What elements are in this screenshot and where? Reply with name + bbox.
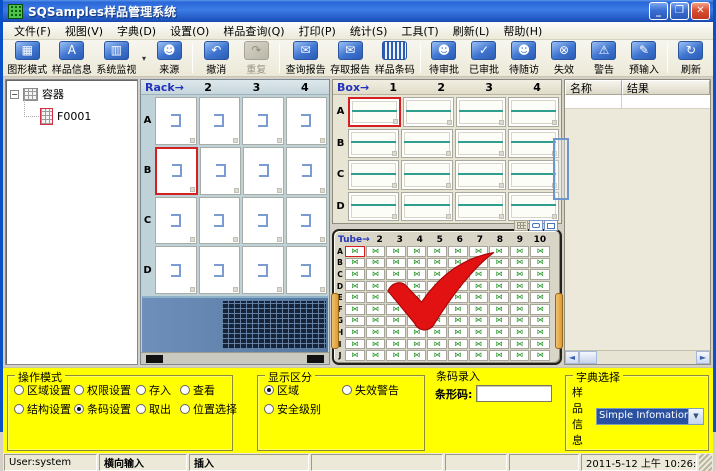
rack-slot-icon <box>258 214 268 227</box>
tcell-D5[interactable]: ⋈ <box>427 281 447 292</box>
column-header-name[interactable]: 名称 <box>565 80 622 95</box>
tcell-G10[interactable]: ⋈ <box>530 316 550 327</box>
radio-icon[interactable] <box>14 385 24 395</box>
sample-info-button[interactable]: A样品信息 <box>50 40 95 77</box>
rcell-A3[interactable] <box>242 97 284 145</box>
rcell-D1[interactable] <box>155 246 197 294</box>
operation-mode-option-取出[interactable]: 取出 <box>136 401 180 417</box>
tcell-B6[interactable]: ⋈ <box>448 258 468 269</box>
grid-view-button[interactable] <box>514 220 528 231</box>
tcell-C5[interactable]: ⋈ <box>427 269 447 280</box>
tcell-F3[interactable]: ⋈ <box>386 304 406 315</box>
tcell-H8[interactable]: ⋈ <box>489 327 509 338</box>
column-header-result[interactable]: 结果 <box>622 80 710 95</box>
toolbar-button-label: 查询报告 <box>286 61 326 76</box>
maximize-button[interactable]: ❐ <box>670 2 689 20</box>
grid-icon <box>517 222 526 229</box>
tcell-F5[interactable]: ⋈ <box>427 304 447 315</box>
query-report-button[interactable]: ✉查询报告 <box>283 40 328 77</box>
tcell-B9[interactable]: ⋈ <box>510 258 530 269</box>
rack-slot-icon <box>172 164 182 177</box>
box-lid-icon <box>511 195 556 219</box>
corner-mark-icon <box>190 138 195 143</box>
tcell-C3[interactable]: ⋈ <box>386 269 406 280</box>
row-label: D <box>335 192 346 222</box>
corner-mark-icon <box>552 214 557 219</box>
corner-mark-icon <box>446 183 451 188</box>
tcell-I5[interactable]: ⋈ <box>427 339 447 350</box>
tcell-J7[interactable]: ⋈ <box>469 350 489 361</box>
tcell-J9[interactable]: ⋈ <box>510 350 530 361</box>
tcell-B3[interactable]: ⋈ <box>386 258 406 269</box>
tcell-H9[interactable]: ⋈ <box>510 327 530 338</box>
scroll-left-button[interactable]: ◄ <box>565 351 579 364</box>
tcell-A7[interactable]: ⋈ <box>469 246 489 257</box>
toolbar: ▦图形模式A样品信息▥系统监视▾☻来源↶撤消↷重复✉查询报告✉存取报告样品条码☻… <box>3 40 713 77</box>
tcell-D9[interactable]: ⋈ <box>510 281 530 292</box>
barcode-entry-group: 条码录入 条形码: <box>429 375 553 451</box>
tcell-A4[interactable]: ⋈ <box>407 246 427 257</box>
toolbar-button-label: 来源 <box>159 61 179 76</box>
undo-button[interactable]: ↶撤消 <box>196 40 236 77</box>
tcell-F4[interactable]: ⋈ <box>407 304 427 315</box>
tcell-B1[interactable]: ⋈ <box>345 258 365 269</box>
tcell-J6[interactable]: ⋈ <box>448 350 468 361</box>
bcell-C4[interactable] <box>508 160 559 190</box>
maximize-child-button[interactable] <box>544 220 558 231</box>
box-seam-icon <box>458 141 503 143</box>
tcell-F6[interactable]: ⋈ <box>448 304 468 315</box>
tcell-B7[interactable]: ⋈ <box>469 258 489 269</box>
sample-barcode-button[interactable]: 样品条码 <box>372 40 417 77</box>
window-title: SQSamples样品管理系统 <box>28 3 647 20</box>
operation-mode-option-位置选择[interactable]: 位置选择 <box>180 401 234 417</box>
tube-col-header: 6 <box>450 235 470 245</box>
radio-label: 取出 <box>149 401 171 417</box>
menu-item[interactable]: 统计(S) <box>343 22 395 40</box>
display-options: 区域失效警告安全级别 <box>264 382 420 417</box>
maximize-icon <box>547 223 555 229</box>
access-report-button[interactable]: ✉存取报告 <box>328 40 373 77</box>
tcell-A6[interactable]: ⋈ <box>448 246 468 257</box>
box-grid: ABCD <box>333 95 561 223</box>
tcell-A3[interactable]: ⋈ <box>386 246 406 257</box>
rcell-B4[interactable] <box>286 147 327 195</box>
rack-header: Rack→234 <box>141 80 329 95</box>
pending-followup-button[interactable]: ☻待随访 <box>504 40 544 77</box>
tube-panel: Tube→2345678910 A⋈⋈⋈⋈⋈⋈⋈⋈⋈⋈B⋈⋈⋈⋈⋈⋈⋈⋈⋈⋈C⋈… <box>332 229 562 365</box>
resize-grip[interactable] <box>699 454 712 471</box>
box-seam-icon <box>351 204 396 206</box>
box-seam-icon <box>511 204 556 206</box>
tcell-E1[interactable]: ⋈ <box>345 292 365 303</box>
approved-icon: ✓ <box>471 41 496 60</box>
radio-icon[interactable] <box>180 385 190 395</box>
box-lid-icon <box>351 132 396 156</box>
app-window: SQSamples样品管理系统 _ ❐ ✕ 文件(F)视图(V)字典(D)设置(… <box>0 0 716 432</box>
tcell-J10[interactable]: ⋈ <box>530 350 550 361</box>
results-hscrollbar: ◄ ► <box>565 350 710 364</box>
bcell-D4[interactable] <box>508 192 559 222</box>
rack-col-header: 2 <box>184 81 232 94</box>
row-label: C <box>335 160 346 190</box>
tcell-D1[interactable]: ⋈ <box>345 281 365 292</box>
menu-bar: 文件(F)视图(V)字典(D)设置(O)样品查询(Q)打印(P)统计(S)工具(… <box>3 22 713 40</box>
freezer-icon <box>40 108 53 125</box>
toolbar-separator <box>192 43 193 73</box>
tcell-G4[interactable]: ⋈ <box>407 316 427 327</box>
rcell-C4[interactable] <box>286 197 328 245</box>
radio-icon[interactable] <box>264 404 274 414</box>
tcell-E4[interactable]: ⋈ <box>407 292 427 303</box>
tcell-C6[interactable]: ⋈ <box>448 269 468 280</box>
bcell-C3[interactable] <box>455 160 506 190</box>
tcell-B2[interactable]: ⋈ <box>366 258 386 269</box>
tcell-E10[interactable]: ⋈ <box>530 292 550 303</box>
box-lid-icon <box>459 100 504 124</box>
tcell-E5[interactable]: ⋈ <box>427 292 447 303</box>
bcell-B2[interactable] <box>401 129 452 159</box>
menu-item[interactable]: 工具(T) <box>394 22 445 40</box>
scroll-track[interactable] <box>597 351 696 364</box>
sample-barcode-icon <box>382 41 407 60</box>
tcell-J4[interactable]: ⋈ <box>407 350 427 361</box>
menu-item[interactable]: 打印(P) <box>292 22 343 40</box>
tcell-E9[interactable]: ⋈ <box>510 292 530 303</box>
tcell-G6[interactable]: ⋈ <box>448 316 468 327</box>
bcell-A3[interactable] <box>456 97 507 127</box>
radio-icon[interactable] <box>180 404 190 414</box>
rcell-B3[interactable] <box>243 147 284 195</box>
radio-icon[interactable] <box>14 404 24 414</box>
tcell-E2[interactable]: ⋈ <box>366 292 386 303</box>
operation-mode-options: 区域设置权限设置存入查看结构设置条码设置取出位置选择 <box>14 382 228 417</box>
rcell-A2[interactable] <box>199 97 241 145</box>
group-title: 操作模式 <box>15 369 65 385</box>
center-column: Box→1234 ABCD Tube→2345678910 A⋈⋈⋈⋈⋈⋈⋈⋈⋈… <box>332 79 562 365</box>
sample-info-combobox[interactable]: Simple Infomation ▼ <box>596 408 704 425</box>
refresh-button[interactable]: ↻刷新 <box>671 40 711 77</box>
bcell-D2[interactable] <box>401 192 452 222</box>
barcode-input[interactable] <box>476 385 552 402</box>
tcell-E8[interactable]: ⋈ <box>489 292 509 303</box>
tcell-B8[interactable]: ⋈ <box>489 258 509 269</box>
corner-mark-icon <box>320 188 325 193</box>
tcell-I3[interactable]: ⋈ <box>386 339 406 350</box>
tcell-C2[interactable]: ⋈ <box>366 269 386 280</box>
row-label: B <box>336 258 344 269</box>
rcell-C2[interactable] <box>199 197 241 245</box>
bcell-C2[interactable] <box>401 160 452 190</box>
approved-button[interactable]: ✓已审批 <box>464 40 504 77</box>
bcell-B4[interactable] <box>508 129 559 159</box>
tcell-H7[interactable]: ⋈ <box>469 327 489 338</box>
bcell-C1[interactable] <box>348 160 399 190</box>
radio-icon[interactable] <box>74 385 84 395</box>
bcell-B1[interactable] <box>348 129 399 159</box>
rack-slot-icon <box>258 264 268 277</box>
operation-mode-option-查看[interactable]: 查看 <box>180 382 234 398</box>
group-title: 显示区分 <box>265 369 315 385</box>
tcell-D3[interactable]: ⋈ <box>386 281 406 292</box>
bcell-D3[interactable] <box>455 192 506 222</box>
tcell-D6[interactable]: ⋈ <box>448 281 468 292</box>
warning-button[interactable]: ⚠警告 <box>584 40 624 77</box>
tcell-C8[interactable]: ⋈ <box>489 269 509 280</box>
rcell-D4[interactable] <box>286 246 328 294</box>
tcell-C7[interactable]: ⋈ <box>469 269 489 280</box>
box-handle[interactable] <box>553 138 569 200</box>
status-extra-2 <box>509 454 579 471</box>
box-seam-icon <box>406 110 451 112</box>
operation-mode-option-权限设置[interactable]: 权限设置 <box>74 382 136 398</box>
tcell-H10[interactable]: ⋈ <box>530 327 550 338</box>
bcell-A4[interactable] <box>508 97 559 127</box>
sample-info-icon: A <box>59 41 84 60</box>
status-extra-1 <box>445 454 507 471</box>
tcell-A10[interactable]: ⋈ <box>530 246 550 257</box>
display-option-安全级别[interactable]: 安全级别 <box>264 401 342 417</box>
rcell-C1[interactable] <box>155 197 197 245</box>
tcell-G1[interactable]: ⋈ <box>345 316 365 327</box>
operation-mode-option-存入[interactable]: 存入 <box>136 382 180 398</box>
tcell-A8[interactable]: ⋈ <box>489 246 509 257</box>
box-lid-icon <box>404 132 449 156</box>
corner-mark-icon <box>277 188 282 193</box>
tcell-A1[interactable]: ⋈ <box>345 246 365 257</box>
minimize-button[interactable]: _ <box>649 2 668 20</box>
collapse-icon[interactable]: − <box>10 90 19 99</box>
graph-mode-icon: ▦ <box>15 41 40 60</box>
tube-window-controls <box>514 220 558 231</box>
box-lid-icon <box>511 100 556 124</box>
graph-mode-button[interactable]: ▦图形模式 <box>5 40 50 77</box>
toolbar-button-label: 撤消 <box>206 61 226 76</box>
tcell-E7[interactable]: ⋈ <box>469 292 489 303</box>
tcell-H1[interactable]: ⋈ <box>345 327 365 338</box>
corner-mark-icon <box>446 151 451 156</box>
box-seam-icon <box>511 173 556 175</box>
source-button[interactable]: ☻来源 <box>149 40 189 77</box>
scroll-thumb[interactable] <box>579 351 597 364</box>
tcell-F1[interactable]: ⋈ <box>345 304 365 315</box>
tcell-B10[interactable]: ⋈ <box>530 258 550 269</box>
box-lid-icon <box>406 100 451 124</box>
operation-mode-option-条码设置[interactable]: 条码设置 <box>74 401 136 417</box>
tcell-row: D⋈⋈⋈⋈⋈⋈⋈⋈⋈⋈ <box>336 281 550 292</box>
tcell-G5[interactable]: ⋈ <box>427 316 447 327</box>
tcell-G2[interactable]: ⋈ <box>366 316 386 327</box>
radio-label: 结构设置 <box>27 401 71 417</box>
group-title: 条码录入 <box>433 368 483 384</box>
bcell-A2[interactable] <box>403 97 454 127</box>
corner-mark-icon <box>499 151 504 156</box>
dict-field-label: 样品信息 <box>572 384 591 448</box>
box-seam-icon <box>352 110 397 112</box>
tcell-I8[interactable]: ⋈ <box>489 339 509 350</box>
row-label: J <box>336 350 344 361</box>
bcell-row: B <box>335 129 559 159</box>
tube-header: Tube→2345678910 <box>336 233 550 246</box>
tube-col-header: 9 <box>510 235 530 245</box>
tcell-J5[interactable]: ⋈ <box>427 350 447 361</box>
rack-slot-icon <box>214 114 224 127</box>
toolbar-button-label: 图形模式 <box>7 61 47 76</box>
tcell-A5[interactable]: ⋈ <box>427 246 447 257</box>
rcell-A1[interactable] <box>155 97 197 145</box>
rcell-B2[interactable] <box>200 147 241 195</box>
bcell-D1[interactable] <box>348 192 399 222</box>
tcell-row: E⋈⋈⋈⋈⋈⋈⋈⋈⋈⋈ <box>336 292 550 303</box>
tcell-B5[interactable]: ⋈ <box>427 258 447 269</box>
toolbar-separator <box>279 43 280 73</box>
radio-icon[interactable] <box>342 385 352 395</box>
tcell-I1[interactable]: ⋈ <box>345 339 365 350</box>
tube-col-header: 2 <box>370 235 390 245</box>
dictionary-group: 字典选择 样品信息 Simple Infomation ▼ <box>565 375 709 451</box>
chevron-down-icon[interactable]: ▼ <box>688 409 703 424</box>
rcell-D2[interactable] <box>199 246 241 294</box>
tcell-F2[interactable]: ⋈ <box>366 304 386 315</box>
box-lid-icon <box>511 163 556 187</box>
tcell-D2[interactable]: ⋈ <box>366 281 386 292</box>
tcell-G7[interactable]: ⋈ <box>469 316 489 327</box>
display-option-失效警告[interactable]: 失效警告 <box>342 382 422 398</box>
tcell-D8[interactable]: ⋈ <box>489 281 509 292</box>
row-label: C <box>336 269 344 280</box>
tcell-C1[interactable]: ⋈ <box>345 269 365 280</box>
tcell-A2[interactable]: ⋈ <box>366 246 386 257</box>
row-label: D <box>336 281 344 292</box>
box-lid-icon <box>351 163 396 187</box>
menu-item[interactable]: 文件(F) <box>7 22 58 40</box>
radio-checked-icon[interactable] <box>264 385 274 395</box>
system-monitor-button[interactable]: ▥系统监视 <box>94 40 139 77</box>
tcell-F10[interactable]: ⋈ <box>530 304 550 315</box>
redo-button: ↷重复 <box>236 40 276 77</box>
tcell-D7[interactable]: ⋈ <box>469 281 489 292</box>
bcell-B3[interactable] <box>455 129 506 159</box>
rack-slot-icon <box>258 114 268 127</box>
tree-item-freezer[interactable]: F0001 <box>40 108 133 125</box>
radio-label: 安全级别 <box>277 401 321 417</box>
rcell-D3[interactable] <box>242 246 284 294</box>
tcell-J1[interactable]: ⋈ <box>345 350 365 361</box>
menu-item[interactable]: 设置(O) <box>163 22 216 40</box>
menu-item[interactable]: 刷新(L) <box>446 22 497 40</box>
tcell-G8[interactable]: ⋈ <box>489 316 509 327</box>
box-lid-icon <box>404 195 449 219</box>
radio-icon[interactable] <box>136 404 146 414</box>
tcell-H4[interactable]: ⋈ <box>407 327 427 338</box>
tube-handle-right[interactable] <box>555 293 563 349</box>
toolbar-button-label: 待随访 <box>509 61 539 76</box>
expired-button[interactable]: ⊗失效 <box>544 40 584 77</box>
tcell-H5[interactable]: ⋈ <box>427 327 447 338</box>
rack-col-header: 4 <box>281 81 329 94</box>
close-button[interactable]: ✕ <box>691 2 710 20</box>
tcell-row: G⋈⋈⋈⋈⋈⋈⋈⋈⋈⋈ <box>336 316 550 327</box>
rcell-A4[interactable] <box>286 97 328 145</box>
radio-checked-icon[interactable] <box>74 404 84 414</box>
tcell-I2[interactable]: ⋈ <box>366 339 386 350</box>
freezer-base <box>141 352 329 364</box>
toolbar-button-label: 重复 <box>246 61 266 76</box>
menu-item[interactable]: 视图(V) <box>58 22 110 40</box>
tcell-H3[interactable]: ⋈ <box>386 327 406 338</box>
rack-slot-icon <box>302 164 312 177</box>
app-icon <box>8 4 23 19</box>
tube-handle-left[interactable] <box>331 293 339 349</box>
status-message <box>311 454 443 471</box>
rcell-C3[interactable] <box>242 197 284 245</box>
bcell-row: D <box>335 192 559 222</box>
tcell-J8[interactable]: ⋈ <box>489 350 509 361</box>
radio-icon[interactable] <box>136 385 146 395</box>
tcell-H6[interactable]: ⋈ <box>448 327 468 338</box>
rack-slot-icon <box>301 214 311 227</box>
tcell-I6[interactable]: ⋈ <box>448 339 468 350</box>
operation-mode-option-结构设置[interactable]: 结构设置 <box>14 401 74 417</box>
tcell-I10[interactable]: ⋈ <box>530 339 550 350</box>
tcell-G3[interactable]: ⋈ <box>386 316 406 327</box>
tcell-J3[interactable]: ⋈ <box>386 350 406 361</box>
tcell-D4[interactable]: ⋈ <box>407 281 427 292</box>
bcell-A1[interactable] <box>348 97 401 127</box>
tcell-H2[interactable]: ⋈ <box>366 327 386 338</box>
status-input-mode: 横向输入 <box>99 454 187 471</box>
menu-item[interactable]: 帮助(H) <box>496 22 549 40</box>
tcell-C4[interactable]: ⋈ <box>407 269 427 280</box>
minimize-child-button[interactable] <box>529 220 543 231</box>
tcell-B4[interactable]: ⋈ <box>407 258 427 269</box>
status-insert-mode: 插入 <box>189 454 309 471</box>
tcell-E6[interactable]: ⋈ <box>448 292 468 303</box>
tcell-F9[interactable]: ⋈ <box>510 304 530 315</box>
toolbar-button-label: 样品信息 <box>52 61 92 76</box>
pending-approval-button[interactable]: ☻待审批 <box>424 40 464 77</box>
barcode-field-label: 条形码: <box>435 386 472 402</box>
menu-item[interactable]: 样品查询(Q) <box>216 22 291 40</box>
tcell-C9[interactable]: ⋈ <box>510 269 530 280</box>
status-bar: User:system 横向输入 插入 2011-5-12 上午 10:26:2… <box>3 453 713 471</box>
tcell-G9[interactable]: ⋈ <box>510 316 530 327</box>
tcell-C10[interactable]: ⋈ <box>530 269 550 280</box>
monitor-dropdown-icon[interactable]: ▾ <box>139 44 150 72</box>
pre-input-button[interactable]: ✎预输入 <box>624 40 664 77</box>
box-seam-icon <box>458 204 503 206</box>
tcell-J2[interactable]: ⋈ <box>366 350 386 361</box>
tcell-F8[interactable]: ⋈ <box>489 304 509 315</box>
tcell-A9[interactable]: ⋈ <box>510 246 530 257</box>
tcell-I4[interactable]: ⋈ <box>407 339 427 350</box>
tcell-I9[interactable]: ⋈ <box>510 339 530 350</box>
rcell-row: B <box>142 147 327 195</box>
box-lid-icon <box>351 195 396 219</box>
tcell-E3[interactable]: ⋈ <box>386 292 406 303</box>
tcell-D10[interactable]: ⋈ <box>530 281 550 292</box>
tcell-I7[interactable]: ⋈ <box>469 339 489 350</box>
box-col-header: 3 <box>465 81 513 94</box>
tcell-F7[interactable]: ⋈ <box>469 304 489 315</box>
group-title: 字典选择 <box>573 369 623 385</box>
scroll-right-button[interactable]: ► <box>696 351 710 364</box>
corner-mark-icon <box>393 119 398 124</box>
rack-slot-icon <box>216 164 226 177</box>
rcell-B1[interactable] <box>155 147 198 195</box>
menu-item[interactable]: 字典(D) <box>110 22 163 40</box>
box-seam-icon <box>351 141 396 143</box>
